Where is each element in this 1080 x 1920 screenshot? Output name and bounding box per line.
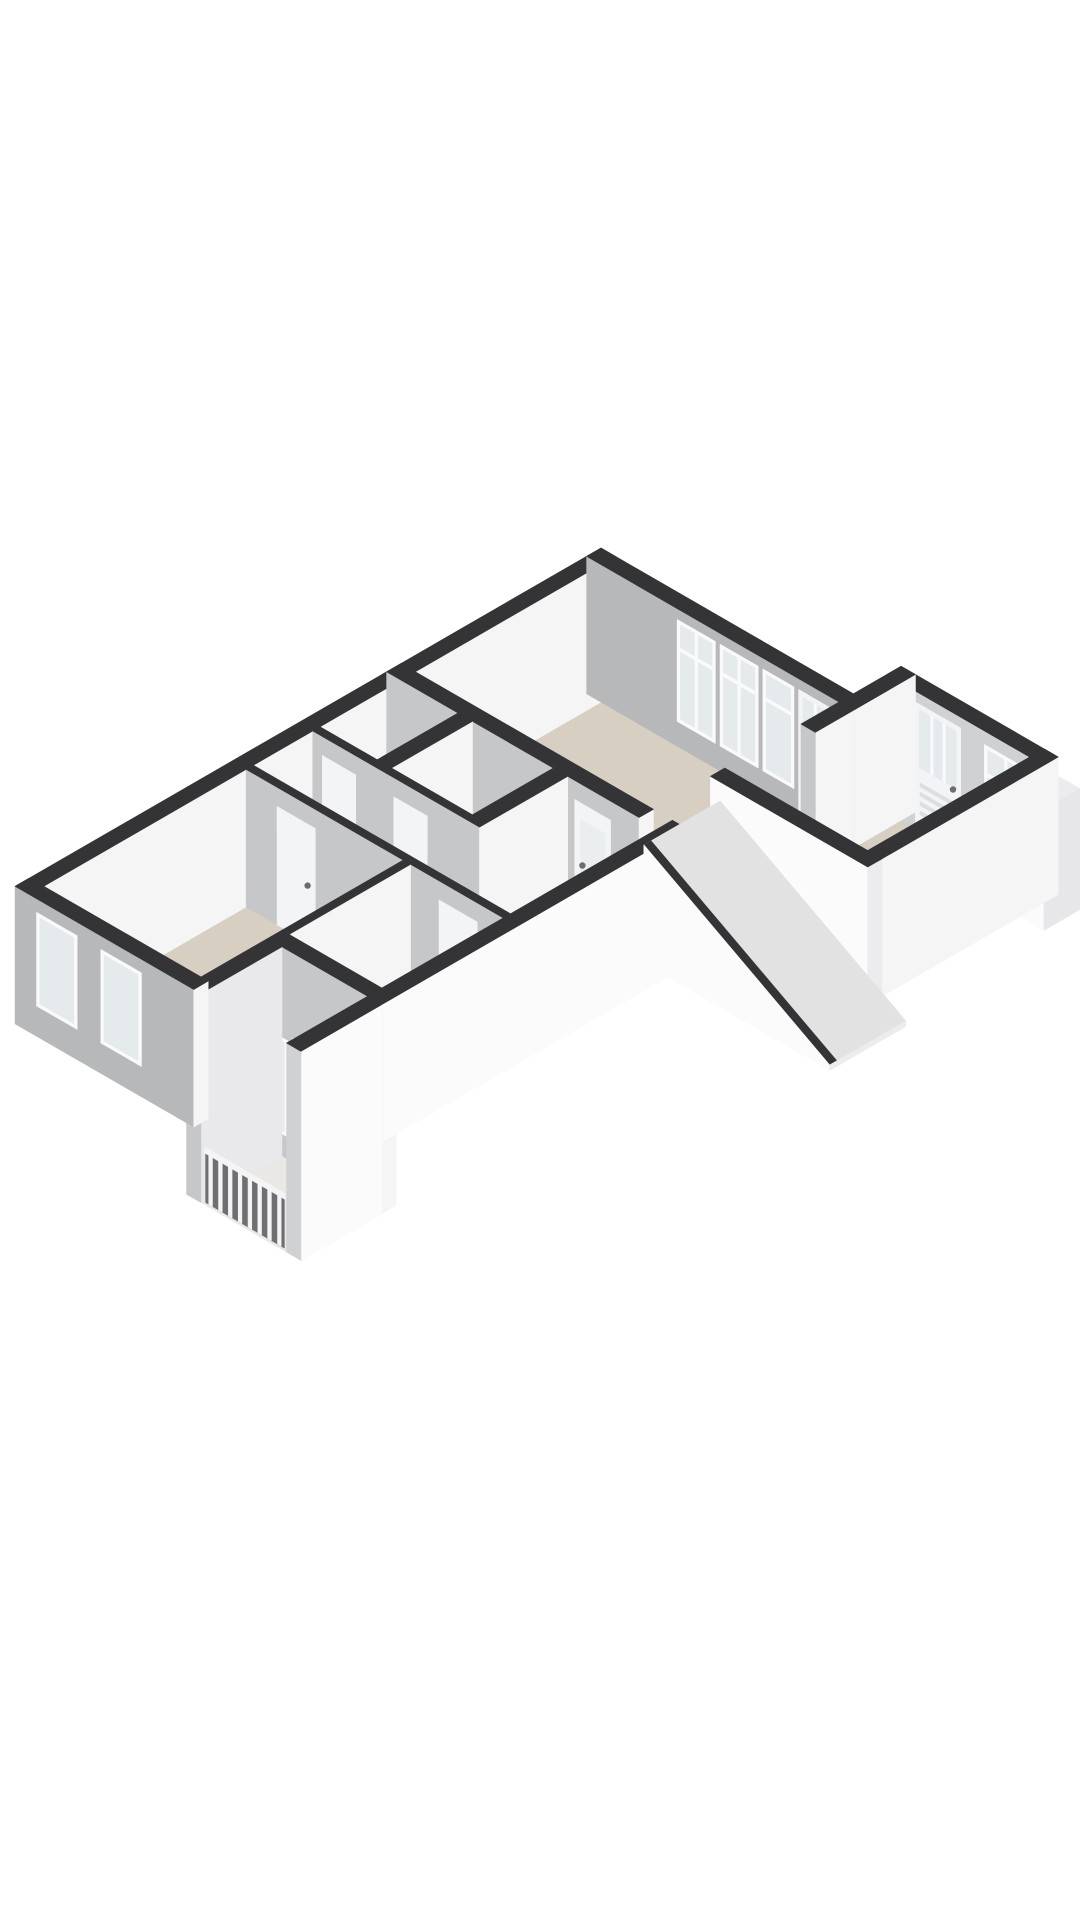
wall-lower-southeast-b — [287, 996, 382, 1260]
floorplan-page — [0, 0, 1080, 1920]
floorplan-figure — [0, 0, 1080, 1920]
floorplan-3d-render — [0, 0, 1080, 1920]
